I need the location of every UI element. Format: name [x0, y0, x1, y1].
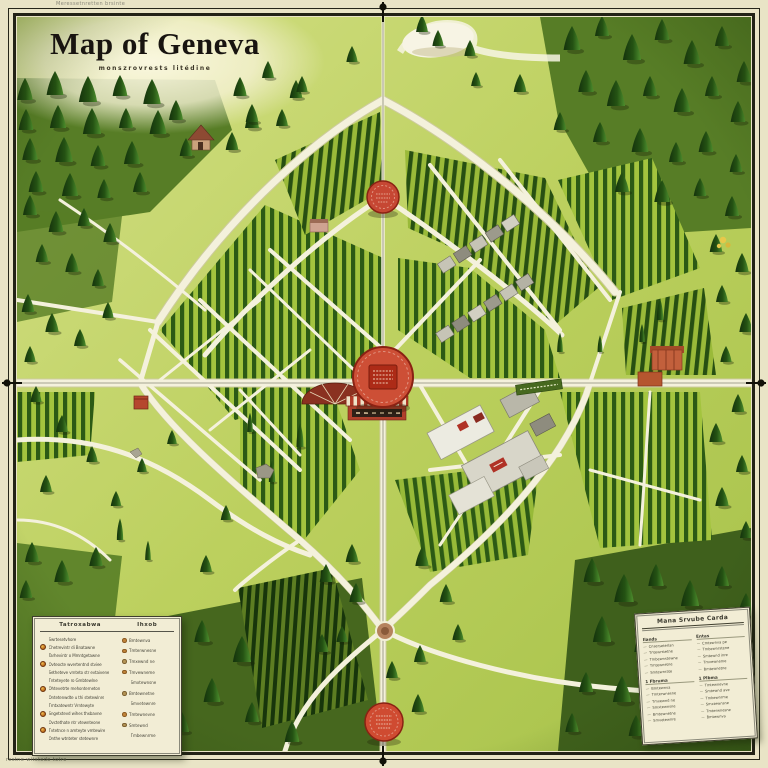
legend-right-col-2: Entas —Cmtewnva pe—Tmbewnrstene—Smtewnd … — [696, 628, 750, 721]
legend-row: Tmterwnesne — [122, 646, 174, 657]
legend-left-column-side: Bmtewnva Tmterwnesne Tmxewnd ne Tmvewnem… — [118, 635, 174, 743]
legend-row: Ovctethate ntr vtewnteone — [40, 718, 118, 726]
legend-row: Tvtetnce n amteyte vmtewire — [40, 726, 118, 734]
section-rows: —Bmtewnva—Tmterwnesne—Tmxewnd ne—Smxtewn… — [646, 683, 697, 724]
legend-box-right: Mana Srvube Carda Ilands —Cnserseterlan—… — [634, 607, 758, 746]
legend-row: Smtewnd — [122, 720, 174, 731]
legend-row: Smvetewnre — [122, 699, 174, 710]
legend-marker-icon — [40, 711, 46, 717]
legend-row: Bmtewnetne — [122, 688, 174, 699]
legend-left-column-main: Swrtesetvhore Chetrevintr di Bnatawne Ta… — [40, 635, 118, 743]
legend-box-left: Tatroxabwa Ihxob Swrtesetvhore Chetrevin… — [32, 616, 182, 756]
map-page: { "title": { "text": "Map of Geneva", "s… — [0, 0, 768, 768]
legend-right-col-1: Ilands —Cnserseterlan—Tntewrstetne—Tmbew… — [642, 631, 696, 724]
legend-marker-icon — [40, 661, 46, 667]
legend-row: Smxtewnsne — [122, 677, 174, 688]
legend-marker-icon — [122, 670, 127, 675]
legend-marker-icon — [122, 659, 127, 664]
section-rows: —Tmtewnevne—Smtewnd ave—Tmbewnrme—Smxtew… — [699, 680, 750, 721]
legend-row: Bmtewnva — [122, 635, 174, 646]
legend-left-header-1: Tatroxabwa — [40, 622, 120, 628]
legend-row: Tmxewnd ne — [122, 656, 174, 667]
page-subtitle: monszrovrests litédine — [30, 65, 280, 72]
legend-marker-icon — [40, 686, 46, 692]
margin-note-top: Meressetnretten brsinte — [56, 1, 125, 7]
legend-row: Ontetenwdte u thi stetewlnre — [40, 693, 118, 701]
legend-marker-icon — [122, 723, 127, 728]
page-title: Map of Geneva — [30, 26, 280, 62]
legend-row: Tmtewnevne — [122, 709, 174, 720]
legend-marker-icon — [122, 649, 127, 654]
legend-row: Ovteocte wvertentnd stviee — [40, 660, 118, 668]
legend-row: Tmbewnrme — [122, 730, 174, 741]
legend-row: Tarhevintr o Mmntgetawne — [40, 652, 118, 660]
section-rows: —Cmtewnva pe—Tmbewnrstene—Smtewnd inre—T… — [696, 638, 746, 673]
section-rows: —Cnserseterlan—Tntewrstetne—Tmbewnstewne… — [643, 641, 693, 676]
legend-marker-icon — [122, 691, 127, 696]
legend-row: Tmtxatewntr Vrntewyte — [40, 701, 118, 709]
legend-divider — [40, 631, 174, 632]
legend-marker-icon — [122, 638, 127, 643]
legend-marker-icon — [40, 727, 46, 733]
legend-row: Sngetxtevd wihes thxbavne — [40, 710, 118, 718]
legend-marker-icon — [40, 644, 46, 650]
legend-left-headers: Tatroxabwa Ihxob — [40, 622, 174, 628]
legend-left-header-2: Ihxob — [120, 622, 174, 628]
legend-row: Swrtesetvhore — [40, 635, 118, 643]
legend-row: Ohtevetrte mehonterneton — [40, 685, 118, 693]
legend-row: Tnteteyete ro Gmbtewlne — [40, 676, 118, 684]
title-block: Map of Geneva monszrovrests litédine — [30, 26, 280, 72]
legend-row: Setheteve vrnteto str evtaivene — [40, 668, 118, 676]
legend-marker-icon — [122, 712, 127, 717]
legend-row: Chetrevintr di Bnatawne — [40, 643, 118, 651]
legend-row: Onthe wtnteter stetewnre — [40, 735, 118, 743]
margin-note-bottom: restne witstede totre — [6, 757, 67, 763]
legend-row: Tmvewneme — [122, 667, 174, 678]
